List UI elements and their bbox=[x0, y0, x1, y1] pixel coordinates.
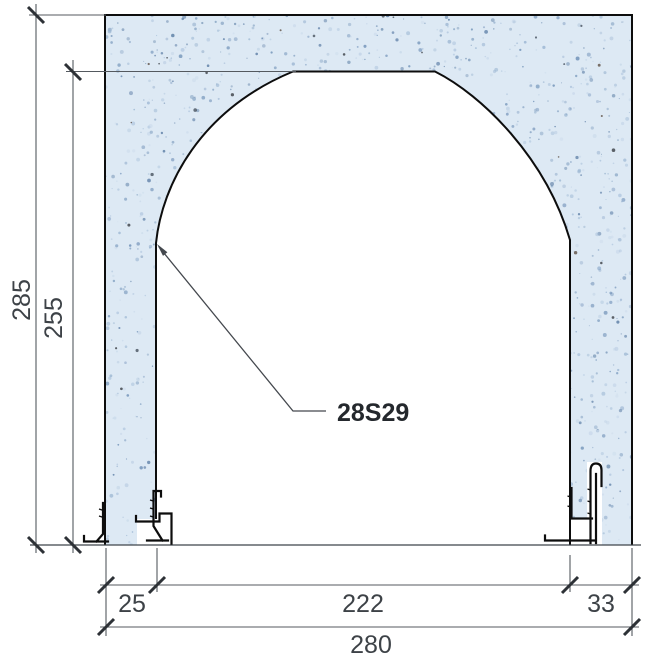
concrete-wall bbox=[104, 14, 634, 547]
leader-line bbox=[159, 247, 326, 411]
opening-outline bbox=[156, 72, 570, 546]
technical-drawing: 28S29 285 255 25 222 33 280 bbox=[0, 0, 651, 663]
dim-right-jamb-width: 33 bbox=[587, 590, 615, 618]
profile-cutouts bbox=[137, 462, 602, 545]
dim-overall-height: 285 bbox=[8, 279, 36, 321]
leader-arrowhead bbox=[157, 244, 167, 256]
leader-callout: 28S29 bbox=[157, 244, 409, 427]
dimension-texts: 285 255 25 222 33 280 bbox=[8, 279, 615, 659]
dim-opening-width: 222 bbox=[342, 590, 384, 618]
system-label: 28S29 bbox=[337, 399, 409, 427]
dim-overall-width: 280 bbox=[350, 631, 392, 659]
concrete-fill bbox=[105, 15, 632, 545]
dim-left-jamb-width: 25 bbox=[118, 590, 146, 618]
right-stud-slot bbox=[587, 462, 602, 545]
dim-opening-height: 255 bbox=[40, 297, 68, 339]
